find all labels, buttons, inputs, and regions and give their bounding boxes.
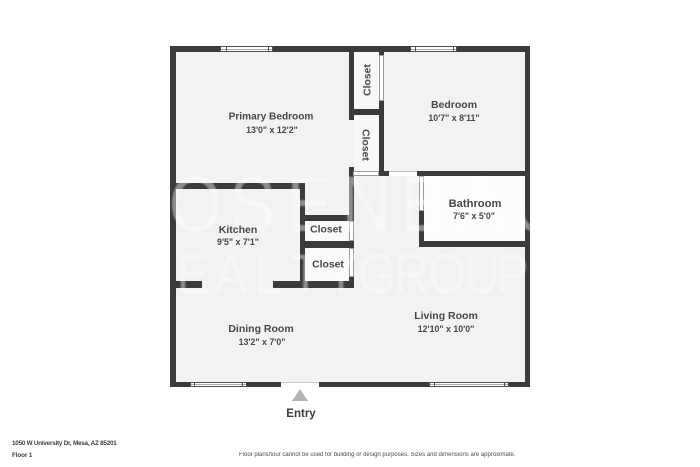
svg-text:P: P <box>496 243 529 306</box>
svg-text:O: O <box>428 243 466 306</box>
svg-text:T: T <box>290 243 320 306</box>
svg-text:B: B <box>401 160 447 249</box>
svg-text:R: R <box>394 243 430 306</box>
svg-text:L: L <box>254 243 281 306</box>
svg-text:U: U <box>464 243 500 306</box>
svg-text:E: E <box>177 243 210 306</box>
svg-text:N: N <box>342 160 392 249</box>
svg-text:A: A <box>214 243 248 306</box>
svg-text:Y: Y <box>325 243 358 306</box>
svg-text:R: R <box>170 243 173 306</box>
svg-text:G: G <box>358 243 396 306</box>
svg-text:U: U <box>513 160 530 249</box>
svg-text:O: O <box>170 160 222 249</box>
